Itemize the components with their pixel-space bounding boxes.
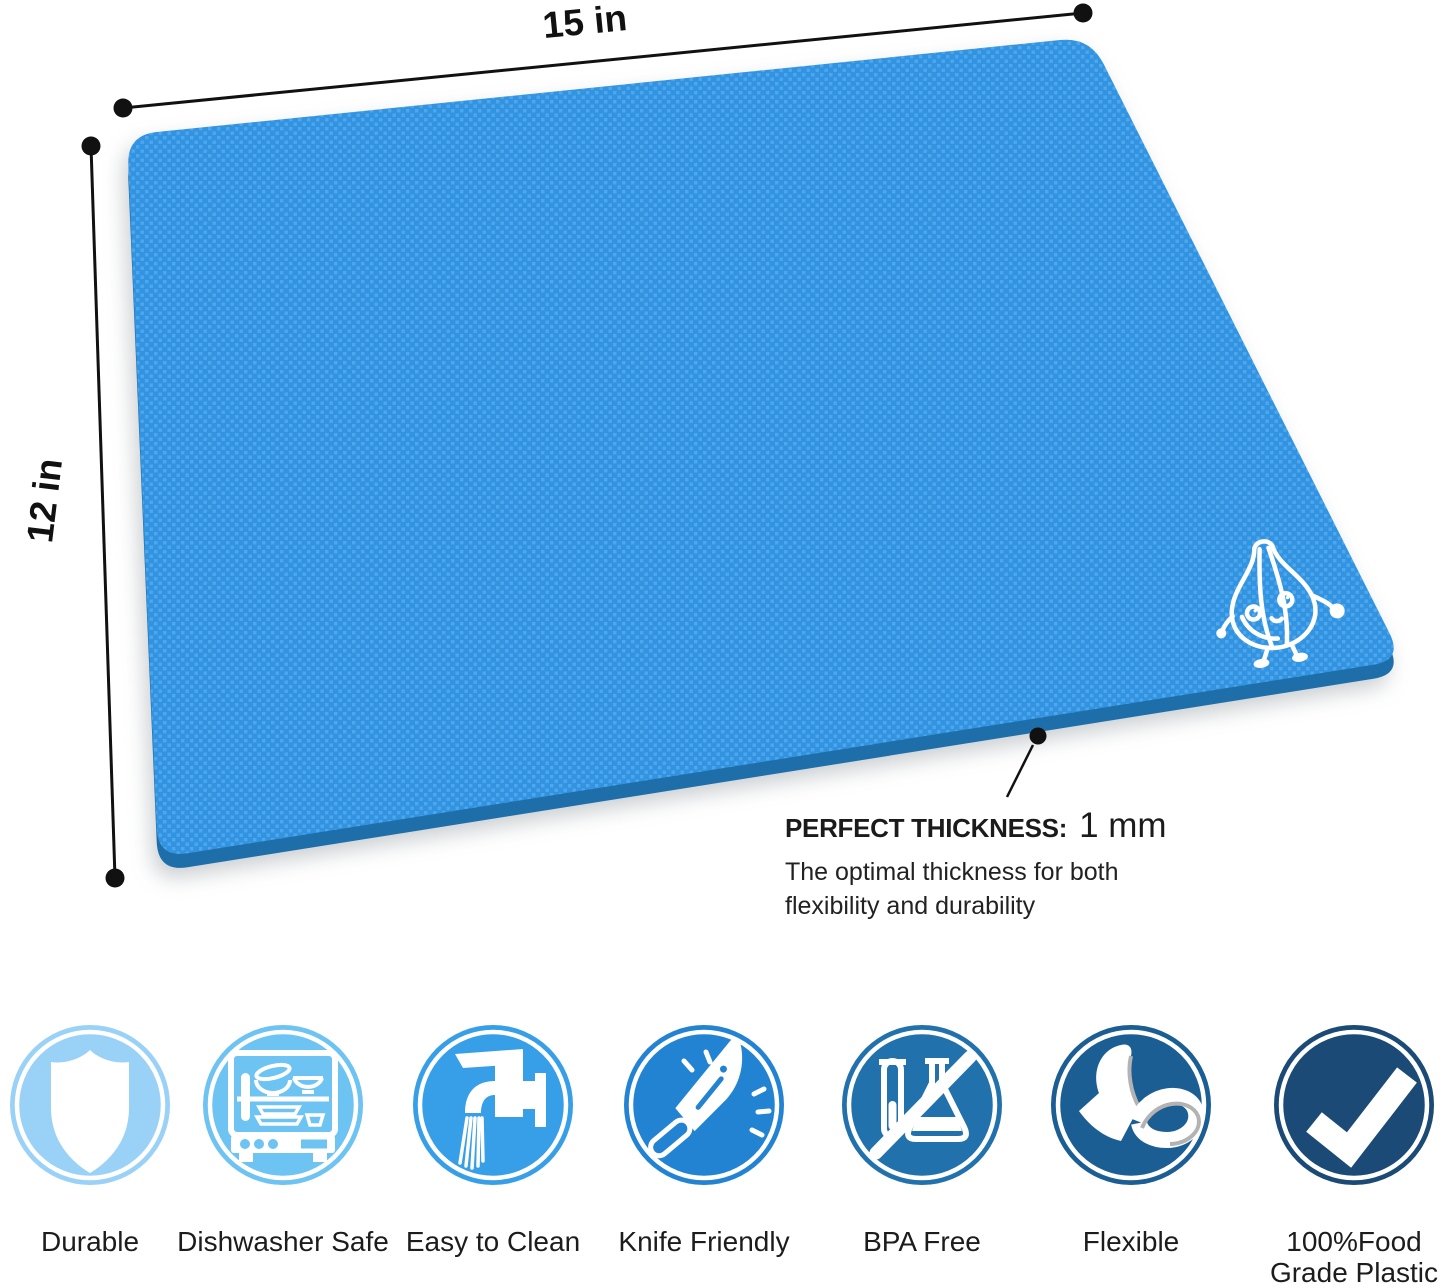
feature-label: Dishwasher Safe — [177, 1226, 389, 1257]
feature-label: BPA Free — [863, 1226, 981, 1257]
thickness-callout: PERFECT THICKNESS: 1 mm The optimal thic… — [785, 806, 1167, 923]
dimension-endpoint-dot — [82, 137, 101, 156]
feature-durable: Durable — [8, 1023, 172, 1187]
feature-label: Durable — [41, 1226, 139, 1257]
feature-dishwasher-safe: Dishwasher Safe — [201, 1023, 365, 1187]
cutting-mat — [128, 40, 1393, 868]
thickness-title: PERFECT THICKNESS: — [785, 813, 1067, 844]
feature-easy-to-clean: Easy to Clean — [411, 1023, 575, 1187]
mat-illustration: 15 in 12 in — [0, 0, 1445, 980]
feature-knife-friendly: Knife Friendly — [622, 1023, 786, 1187]
mat-texture — [128, 40, 1393, 854]
feature-label: Flexible — [1083, 1226, 1179, 1257]
shield-icon — [8, 1023, 172, 1187]
knife-icon — [622, 1023, 786, 1187]
thickness-description-line2: flexibility and durability — [785, 889, 1167, 923]
bent-mat-icon — [1049, 1023, 1213, 1187]
thickness-value: 1 mm — [1079, 806, 1167, 846]
thickness-description-line1: The optimal thickness for both — [785, 855, 1167, 889]
dimension-endpoint-dot — [106, 869, 125, 888]
dimension-endpoint-dot — [1074, 4, 1093, 23]
width-dimension-label: 15 in — [541, 0, 629, 46]
feature-label: Knife Friendly — [618, 1226, 789, 1257]
feature-label: Easy to Clean — [406, 1226, 580, 1257]
checkmark-icon — [1272, 1023, 1436, 1187]
dishwasher-icon — [201, 1023, 365, 1187]
feature-flexible: Flexible — [1049, 1023, 1213, 1187]
height-dimension-label: 12 in — [19, 456, 70, 545]
feature-label: 100%Food Grade Plastic — [1259, 1226, 1445, 1288]
faucet-icon — [411, 1023, 575, 1187]
feature-bpa-free: BPA Free — [840, 1023, 1004, 1187]
dimension-endpoint-dot — [114, 99, 133, 118]
feature-food-grade: 100%Food Grade Plastic — [1272, 1023, 1436, 1187]
no-chemicals-icon — [840, 1023, 1004, 1187]
product-infographic: 15 in 12 in PERFECT THICKNESS: 1 mm The … — [0, 0, 1445, 1288]
thickness-pointer — [1007, 728, 1047, 798]
height-dimension: 12 in — [19, 137, 124, 888]
